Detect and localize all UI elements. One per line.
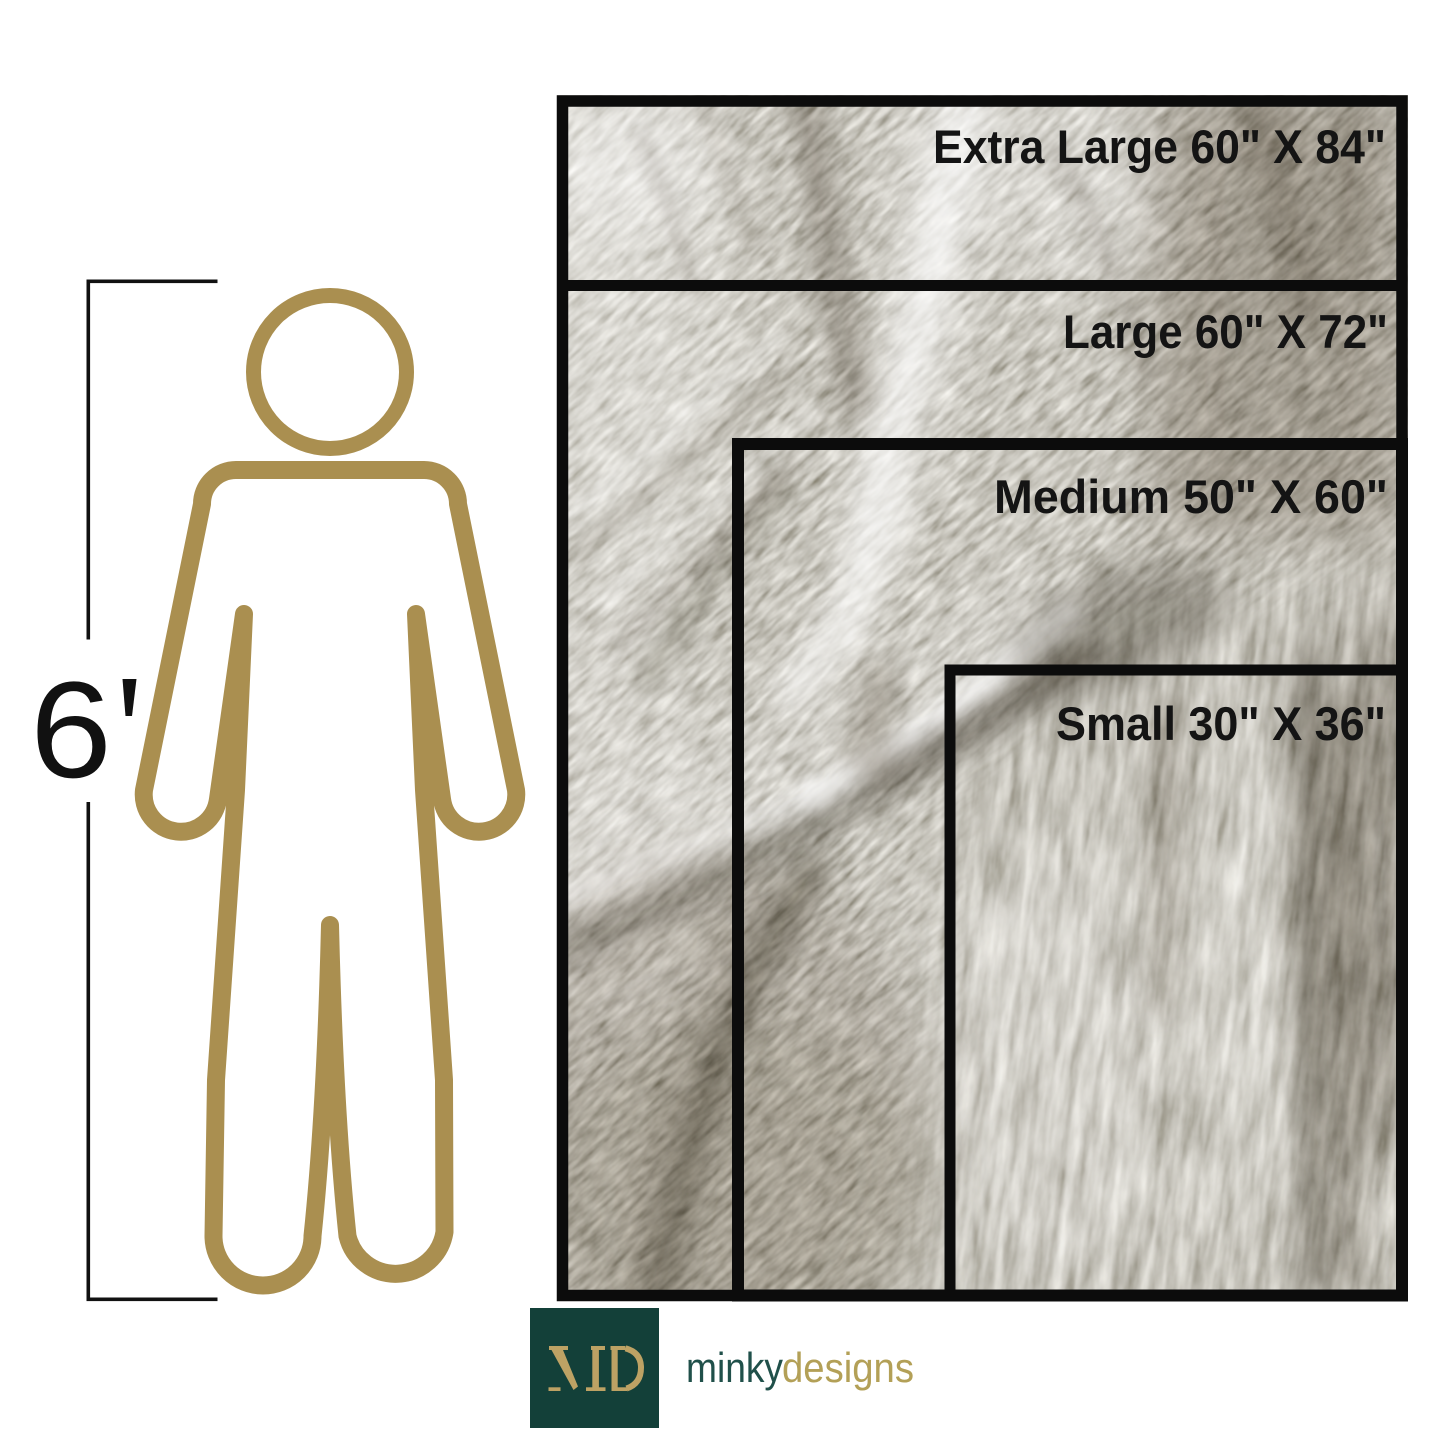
- svg-text:Extra Large 60" X 84": Extra Large 60" X 84": [933, 120, 1386, 173]
- svg-text:designs: designs: [782, 1344, 914, 1391]
- svg-text:Medium 50" X 60": Medium 50" X 60": [994, 470, 1388, 523]
- svg-text:Large 60" X 72": Large 60" X 72": [1063, 305, 1388, 358]
- svg-text:minky: minky: [686, 1344, 783, 1391]
- svg-text:Small 30" X 36": Small 30" X 36": [1056, 697, 1386, 750]
- svg-text:6: 6: [30, 654, 112, 807]
